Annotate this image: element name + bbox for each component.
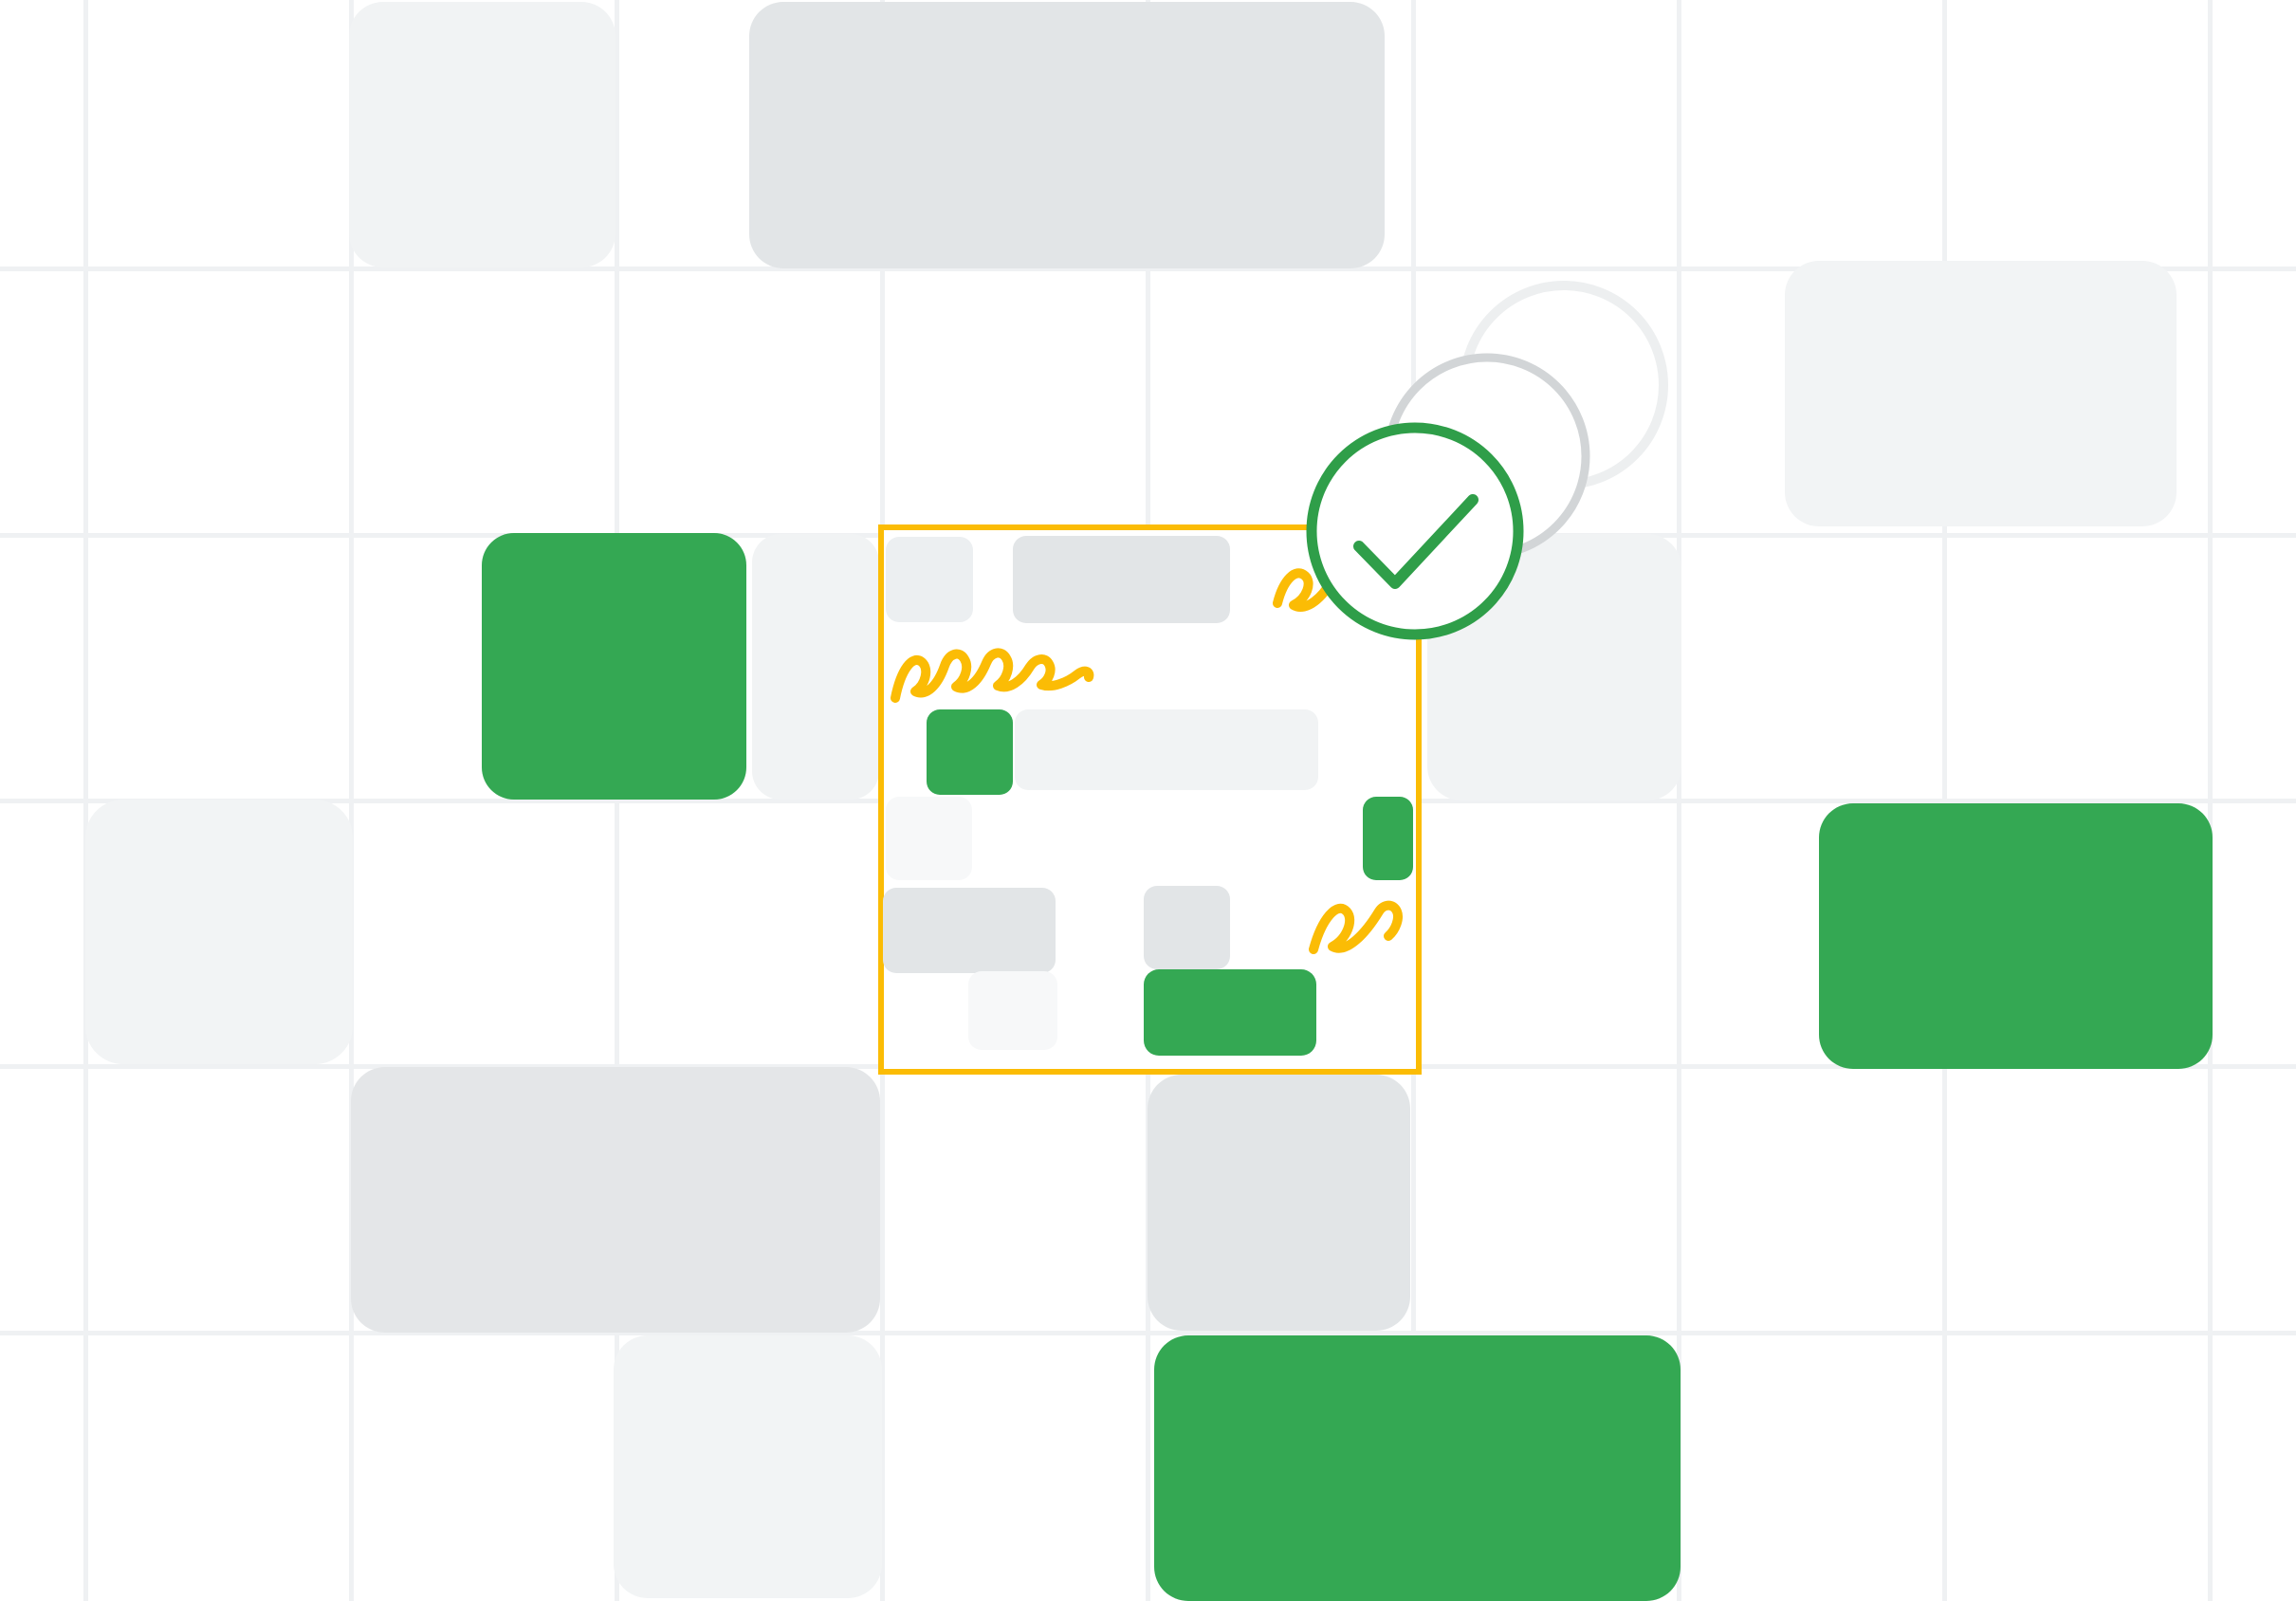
check-circle [1312,428,1518,635]
scribble-mid-left [895,653,1089,698]
scribble-bottom-right [1313,906,1398,949]
illustration-canvas [0,0,2296,1601]
decoration-overlay [0,0,2296,1601]
